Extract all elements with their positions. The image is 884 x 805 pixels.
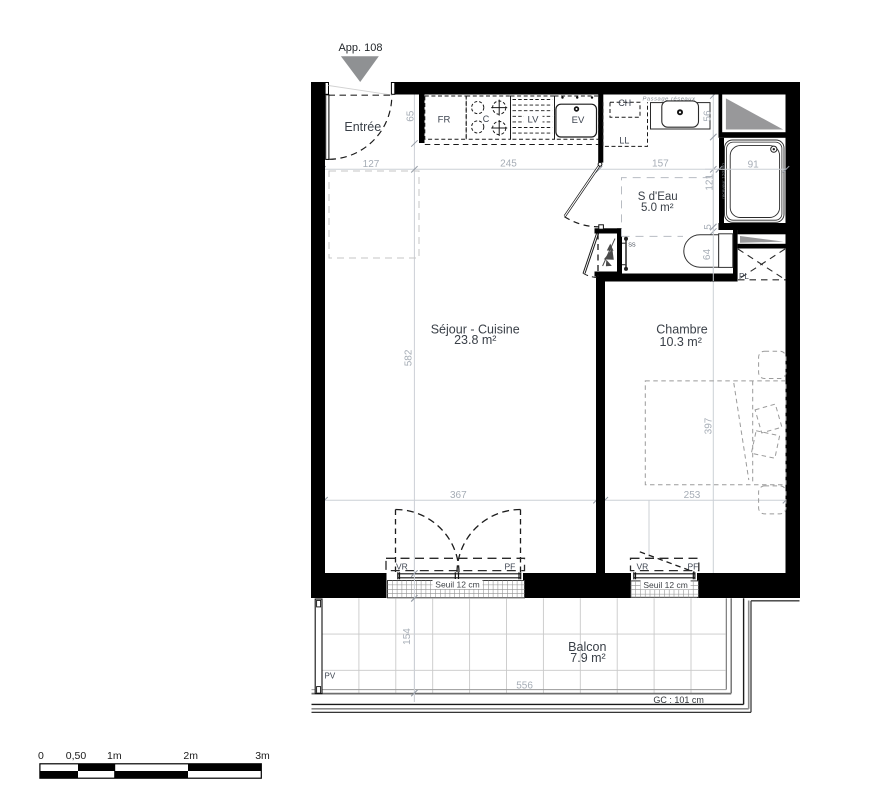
svg-text:PV: PV [325, 672, 336, 681]
svg-text:FR: FR [438, 115, 451, 126]
svg-text:582: 582 [404, 349, 415, 366]
svg-text:Entrée: Entrée [344, 120, 381, 134]
svg-text:Seuil 12 cm: Seuil 12 cm [643, 580, 687, 590]
svg-text:2m: 2m [183, 750, 198, 762]
svg-text:receveur 120x80: receveur 120x80 [721, 163, 727, 199]
svg-text:GC : 101 cm: GC : 101 cm [653, 695, 704, 705]
svg-text:CH: CH [618, 98, 631, 108]
svg-text:5.0 m²: 5.0 m² [641, 202, 674, 214]
svg-text:64: 64 [702, 249, 713, 261]
svg-text:397: 397 [704, 417, 715, 434]
svg-text:0,50: 0,50 [66, 750, 87, 762]
svg-text:7.9 m²: 7.9 m² [570, 651, 605, 665]
svg-text:1m: 1m [107, 750, 122, 762]
svg-text:10.3 m²: 10.3 m² [660, 335, 702, 349]
svg-text:PL: PL [739, 272, 749, 281]
svg-text:65: 65 [405, 110, 416, 122]
svg-text:556: 556 [516, 681, 533, 692]
svg-text:253: 253 [684, 490, 701, 501]
svg-text:127: 127 [363, 159, 380, 170]
svg-text:VR: VR [637, 562, 649, 572]
svg-text:0: 0 [38, 750, 44, 762]
svg-text:5: 5 [703, 224, 714, 230]
svg-text:LL: LL [619, 136, 629, 146]
svg-text:245: 245 [500, 159, 517, 170]
svg-text:157: 157 [652, 159, 669, 170]
svg-text:VR: VR [396, 562, 408, 572]
svg-text:56: 56 [703, 110, 714, 122]
svg-text:SS: SS [628, 242, 636, 248]
svg-text:App. 108: App. 108 [338, 42, 382, 54]
svg-text:PF: PF [688, 562, 699, 572]
svg-text:PF: PF [505, 562, 516, 572]
svg-text:EV: EV [572, 115, 585, 126]
svg-text:154: 154 [402, 628, 413, 645]
svg-text:367: 367 [450, 490, 467, 501]
svg-text:Seuil 12 cm: Seuil 12 cm [435, 580, 479, 590]
svg-text:LV: LV [528, 115, 540, 126]
svg-text:23.8 m²: 23.8 m² [454, 333, 496, 347]
svg-text:3m: 3m [255, 750, 270, 762]
svg-text:C: C [483, 114, 490, 124]
